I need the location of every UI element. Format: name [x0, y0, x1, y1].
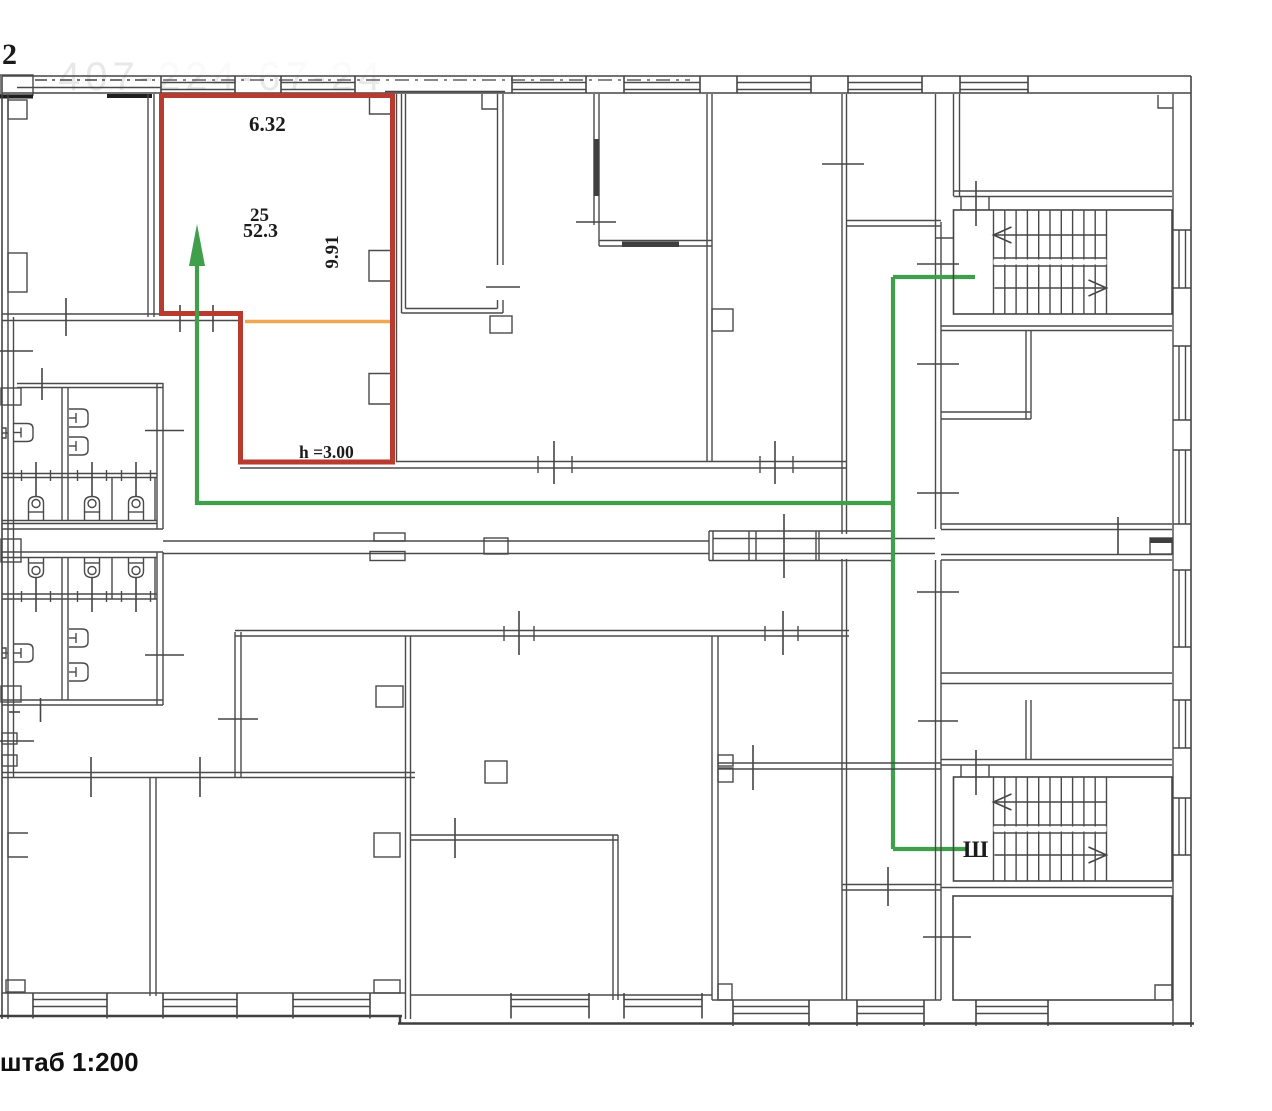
svg-text:9.91: 9.91	[322, 235, 343, 268]
svg-text:52.3: 52.3	[243, 220, 278, 242]
svg-text:6.32: 6.32	[249, 112, 286, 136]
svg-text:Ш: Ш	[963, 837, 988, 862]
svg-text:h =3.00: h =3.00	[299, 442, 354, 462]
svg-text:2: 2	[2, 38, 17, 71]
svg-text:Масштаб 1:200: Масштаб 1:200	[0, 1047, 139, 1077]
